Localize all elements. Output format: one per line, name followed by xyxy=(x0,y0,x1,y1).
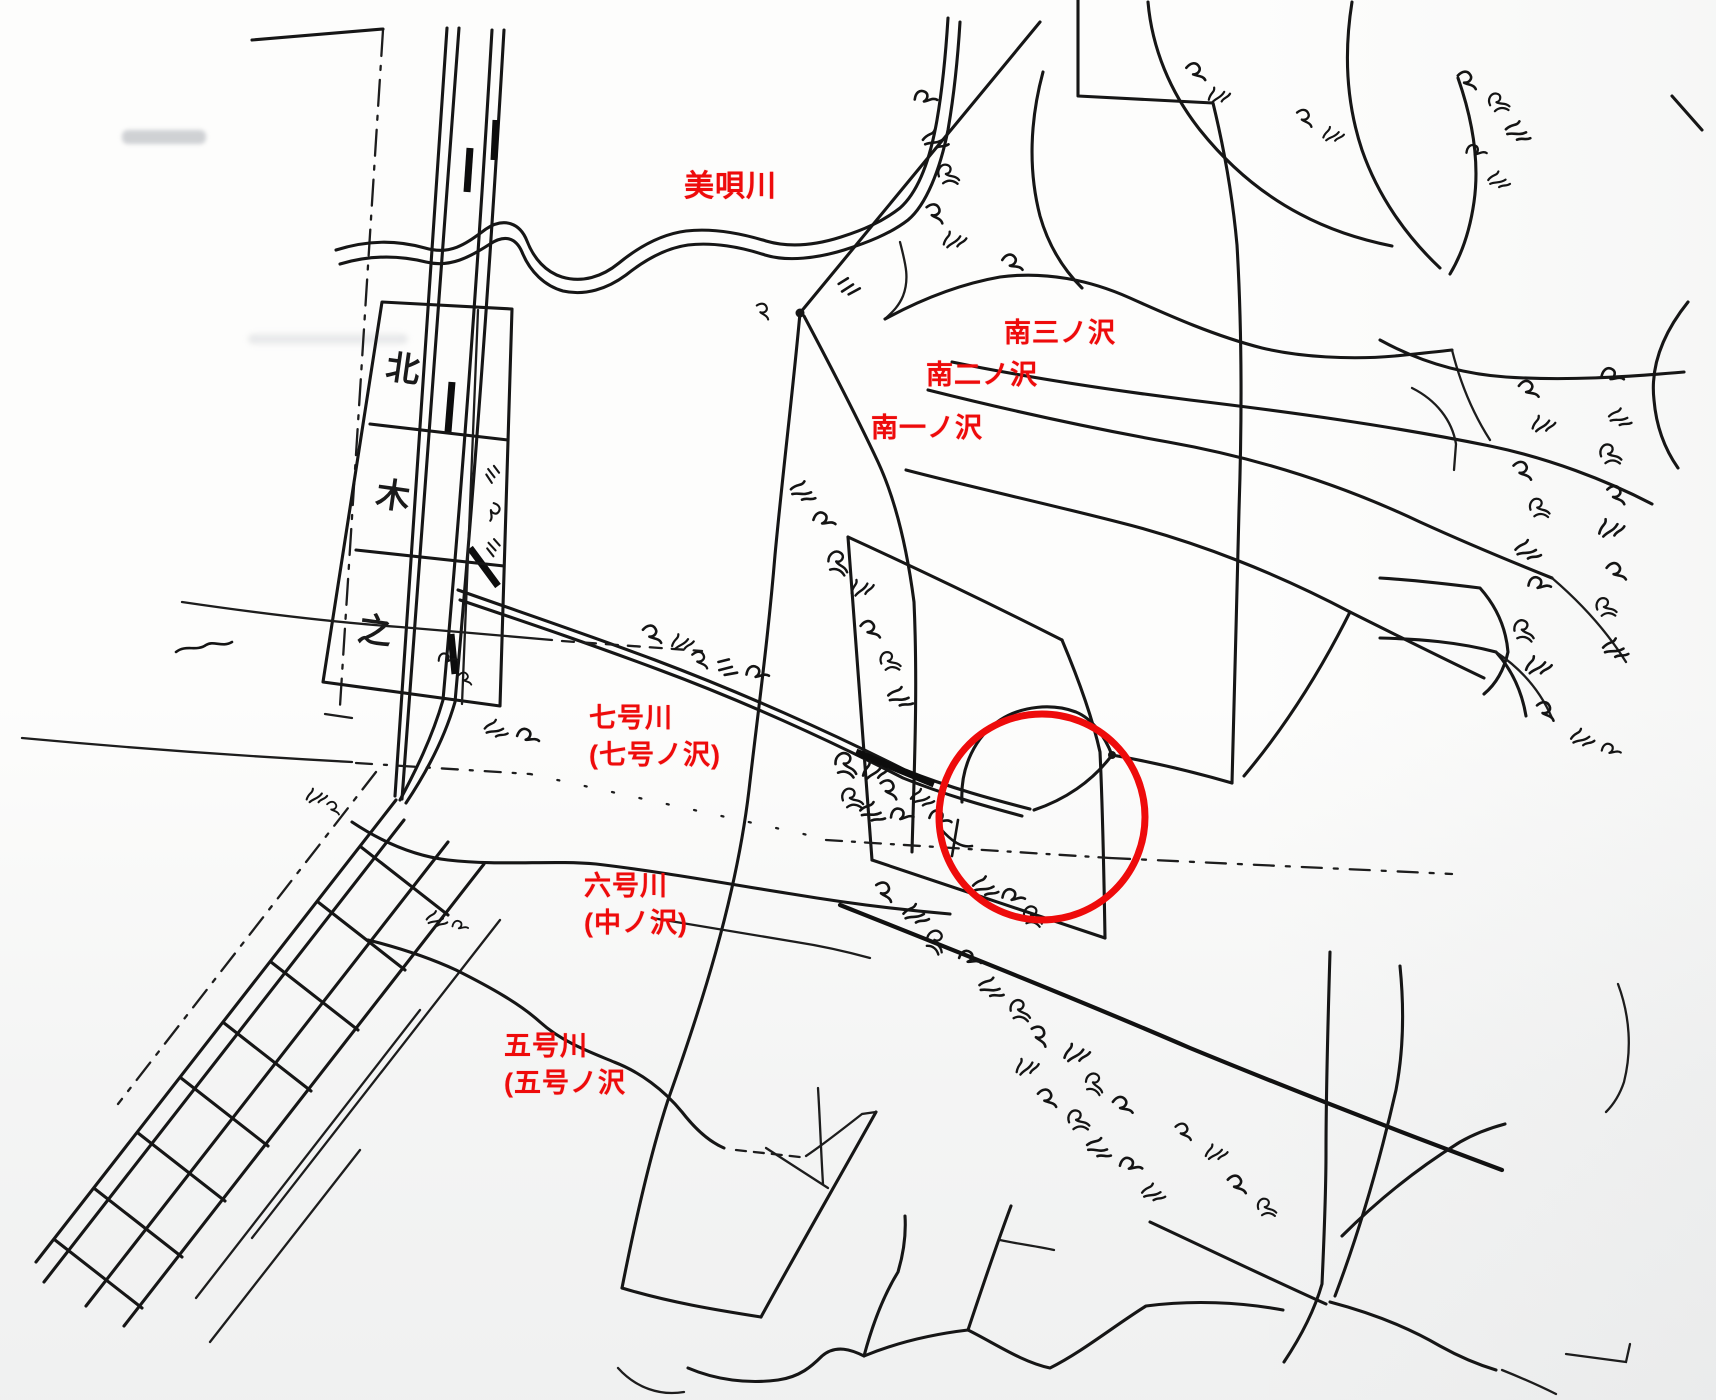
label-text: (五号ノ沢 xyxy=(504,1068,626,1098)
label-text: 南一ノ沢 xyxy=(871,413,983,443)
minami-sawa-streams xyxy=(885,275,1652,776)
railway-tracks xyxy=(252,28,504,803)
label-text: (七号ノ沢) xyxy=(589,740,721,770)
label-minami-ni-no-sawa: 南二ノ沢 xyxy=(926,357,1038,394)
label-gogo-river: 五号川 (五号ノ沢 xyxy=(504,1028,626,1102)
label-rokugo-river: 六号川 (中ノ沢) xyxy=(584,868,688,942)
grid-kanji-top: 北 xyxy=(383,348,422,390)
label-text: 五号川 xyxy=(504,1031,588,1061)
label-text: 七号川 xyxy=(589,703,673,733)
label-text: 南三ノ沢 xyxy=(1004,318,1116,348)
label-text: 六号川 xyxy=(584,871,668,901)
label-nanago-river: 七号川 (七号ノ沢) xyxy=(589,700,721,774)
railroad-station-marks xyxy=(448,120,498,674)
label-minami-ichi-no-sawa: 南一ノ沢 xyxy=(871,410,983,447)
label-minami-san-no-sawa: 南三ノ沢 xyxy=(1004,315,1116,352)
label-text: 南二ノ沢 xyxy=(926,360,1038,390)
label-text: (中ノ沢) xyxy=(584,908,688,938)
grid-kanji-middle: 木 xyxy=(372,475,412,518)
map-drawing: 北 木 之 xyxy=(0,0,1716,1400)
bottom-center-stream-tree xyxy=(618,1206,1283,1393)
bottom-right-stream-tree xyxy=(1284,952,1630,1394)
scanned-map-page: 北 木 之 xyxy=(0,0,1716,1400)
top-right-streams xyxy=(1032,2,1702,468)
label-bibai-river: 美唄川 xyxy=(684,168,777,205)
section-dash-line xyxy=(22,602,1452,874)
label-text: 美唄川 xyxy=(684,170,777,203)
highlight-circle-annotation xyxy=(939,714,1145,920)
grid-kanji-bottom: 之 xyxy=(355,610,394,652)
